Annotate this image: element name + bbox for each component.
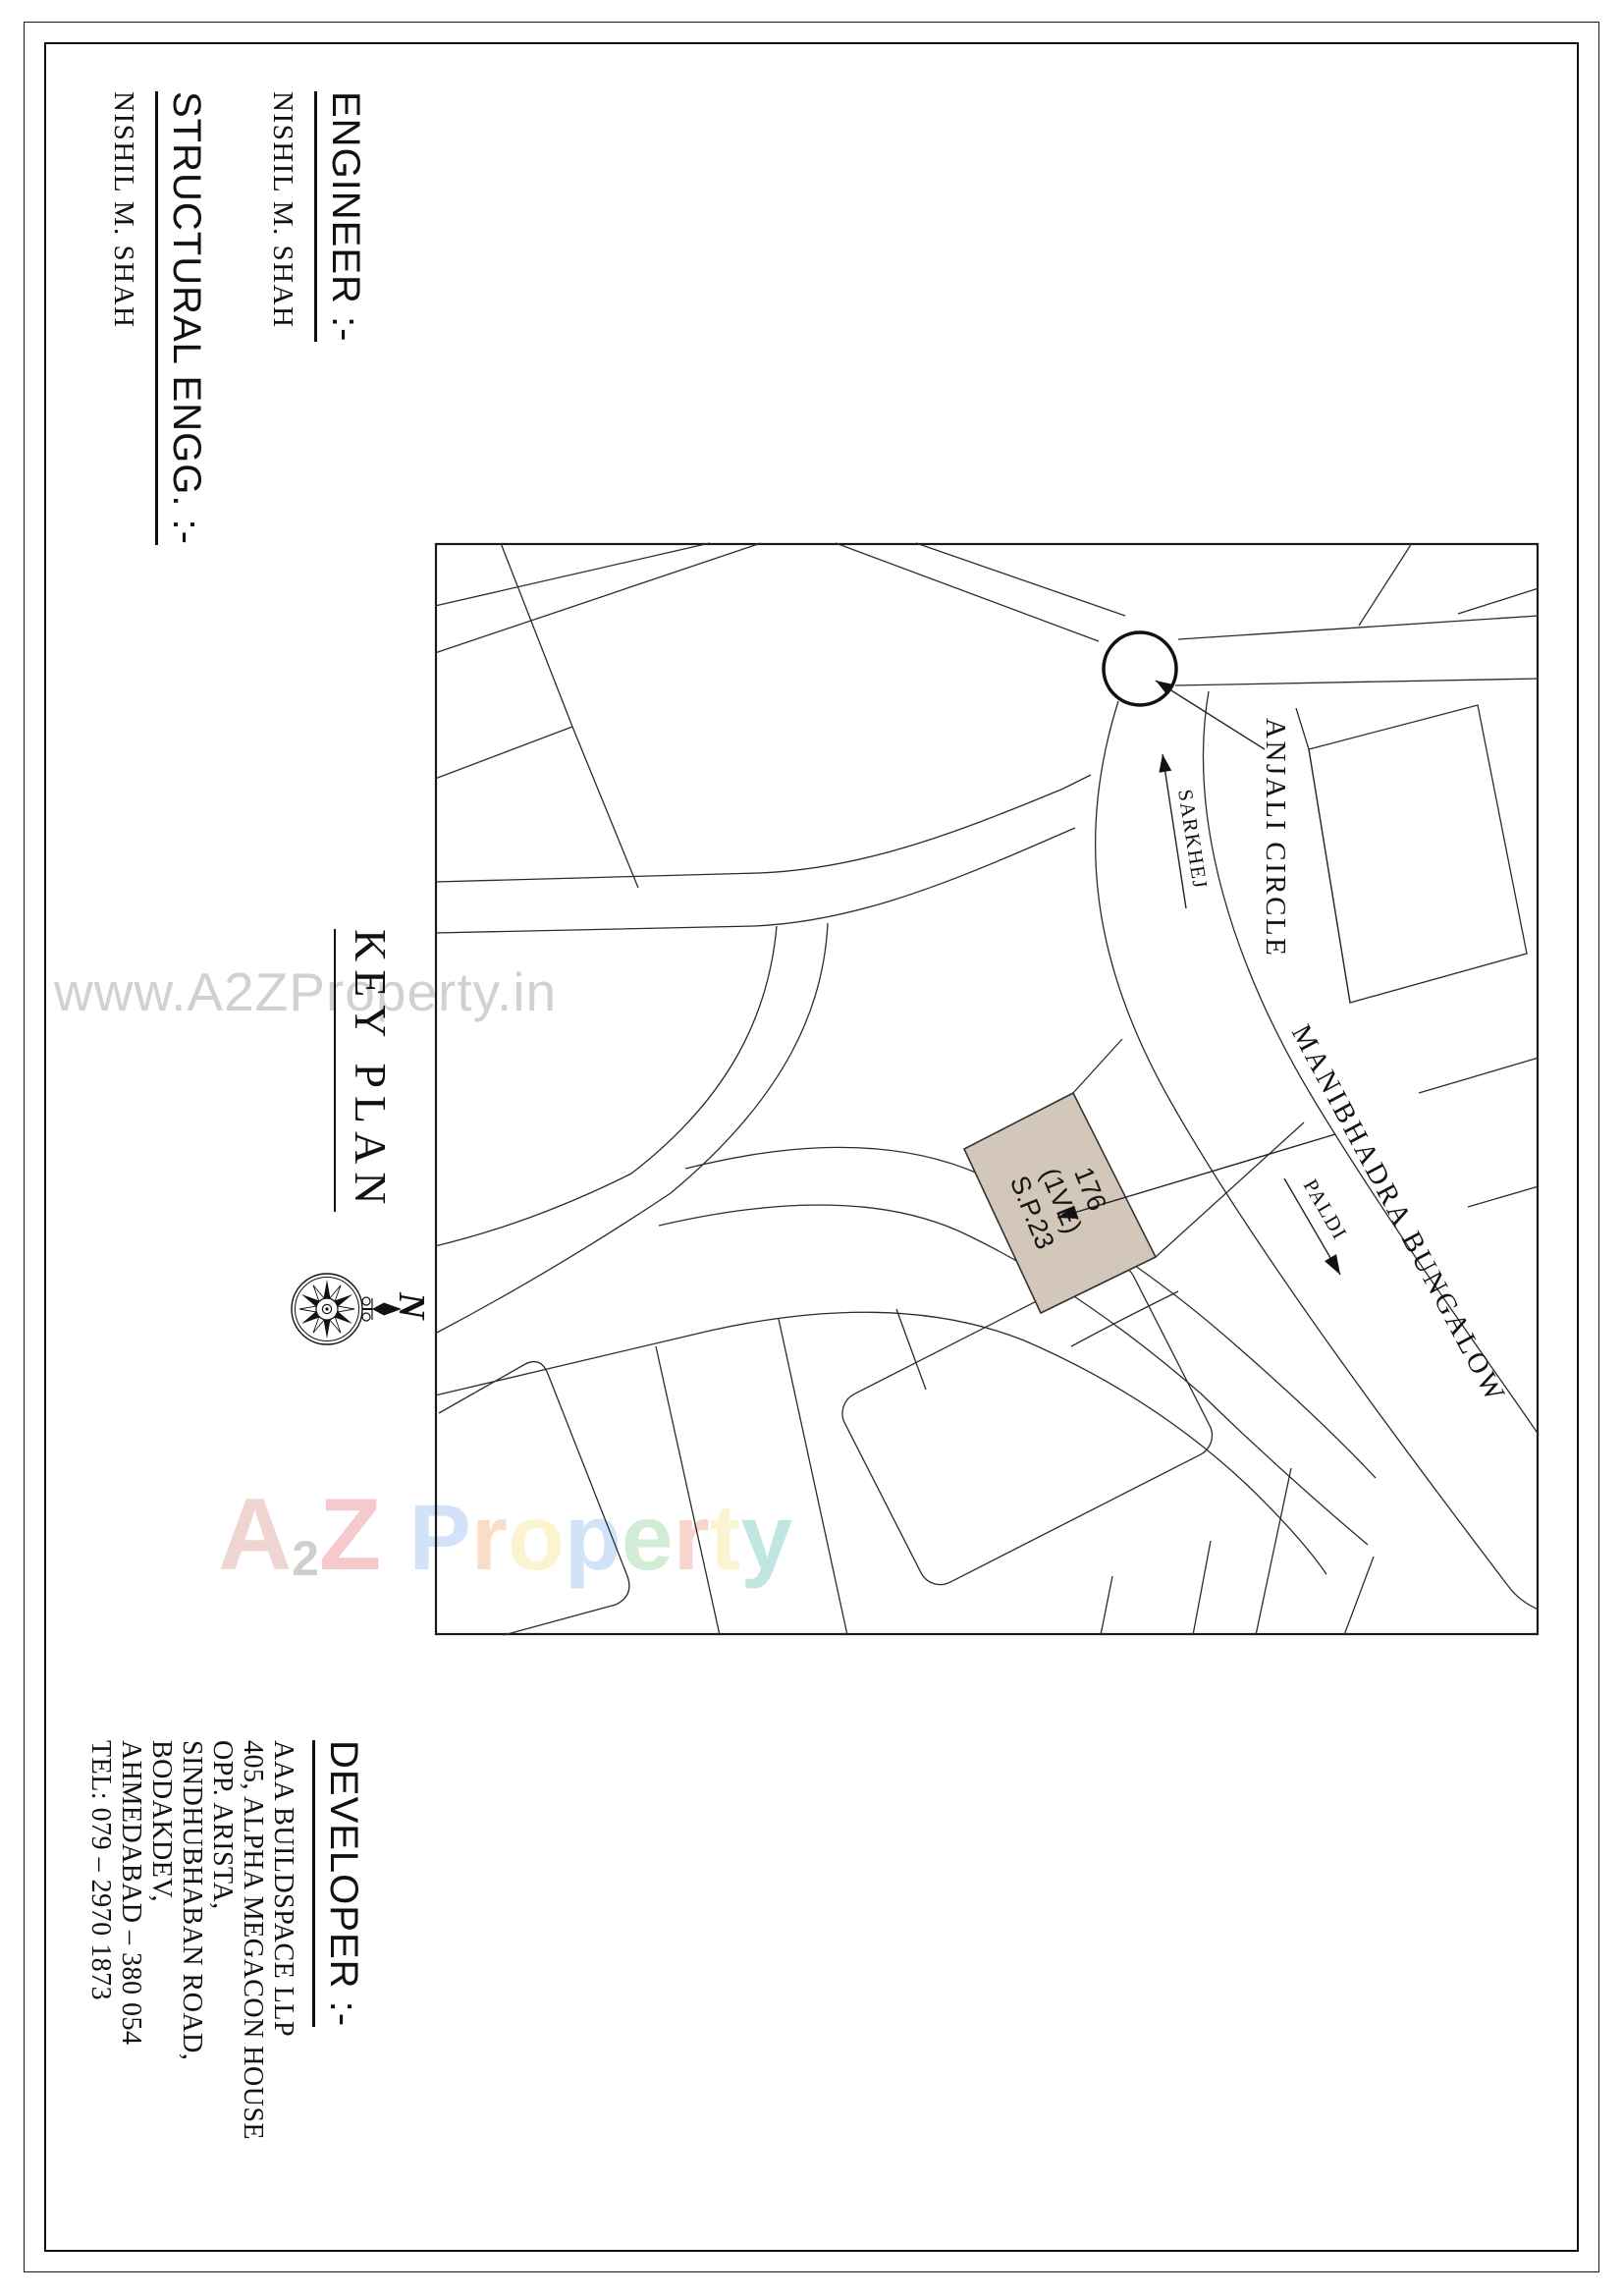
engineer-heading: ENGINEER :-: [314, 91, 367, 342]
roundabout-anjali-circle: [1104, 632, 1176, 705]
developer-line: OPP. ARISTA,: [207, 1740, 238, 2251]
north-label: N: [391, 1291, 432, 1321]
leader-anjali-circle: [1153, 676, 1265, 749]
structural-heading: STRUCTURAL ENGG. :-: [155, 91, 208, 545]
label-paldi: PALDI: [1299, 1175, 1352, 1244]
page-title: KEY PLAN: [334, 929, 397, 1212]
drawing-sheet: www.A2ZProperty.in A2ZProperty: [0, 0, 1623, 2296]
structural-name: NISHIL M. SHAH: [107, 91, 139, 543]
developer-line: SINDHUBHABAN ROAD,: [177, 1740, 207, 2251]
engineer-name: NISHIL M. SHAH: [266, 91, 298, 425]
developer-line: 405, ALPHA MEGACON HOUSE: [238, 1740, 268, 2251]
developer-block: DEVELOPER :- AAA BUILDSPACE LLP 405, ALP…: [85, 1740, 365, 2251]
compass-rose: N: [292, 1274, 432, 1344]
developer-heading: DEVELOPER :-: [312, 1740, 365, 2027]
key-plan-title-block: KEY PLAN: [334, 929, 397, 1243]
developer-line: BODAKDEV,: [146, 1740, 177, 2251]
structural-engineer-block: STRUCTURAL ENGG. :- NISHIL M. SHAH: [107, 91, 208, 543]
developer-address: AAA BUILDSPACE LLP 405, ALPHA MEGACON HO…: [85, 1740, 298, 2251]
developer-line: TEL: 079 – 2970 1873: [85, 1740, 116, 2251]
developer-line: AAA BUILDSPACE LLP: [268, 1740, 298, 2251]
engineer-block: ENGINEER :- NISHIL M. SHAH: [266, 91, 367, 425]
label-sarkhej: SARKHEJ: [1173, 788, 1213, 891]
road-network: [435, 543, 1539, 1635]
map-frame: [436, 544, 1538, 1634]
label-anjali-circle: ANJALI CIRCLE: [1260, 718, 1291, 957]
developer-line: AHMEDABAD – 380 054: [116, 1740, 146, 2251]
